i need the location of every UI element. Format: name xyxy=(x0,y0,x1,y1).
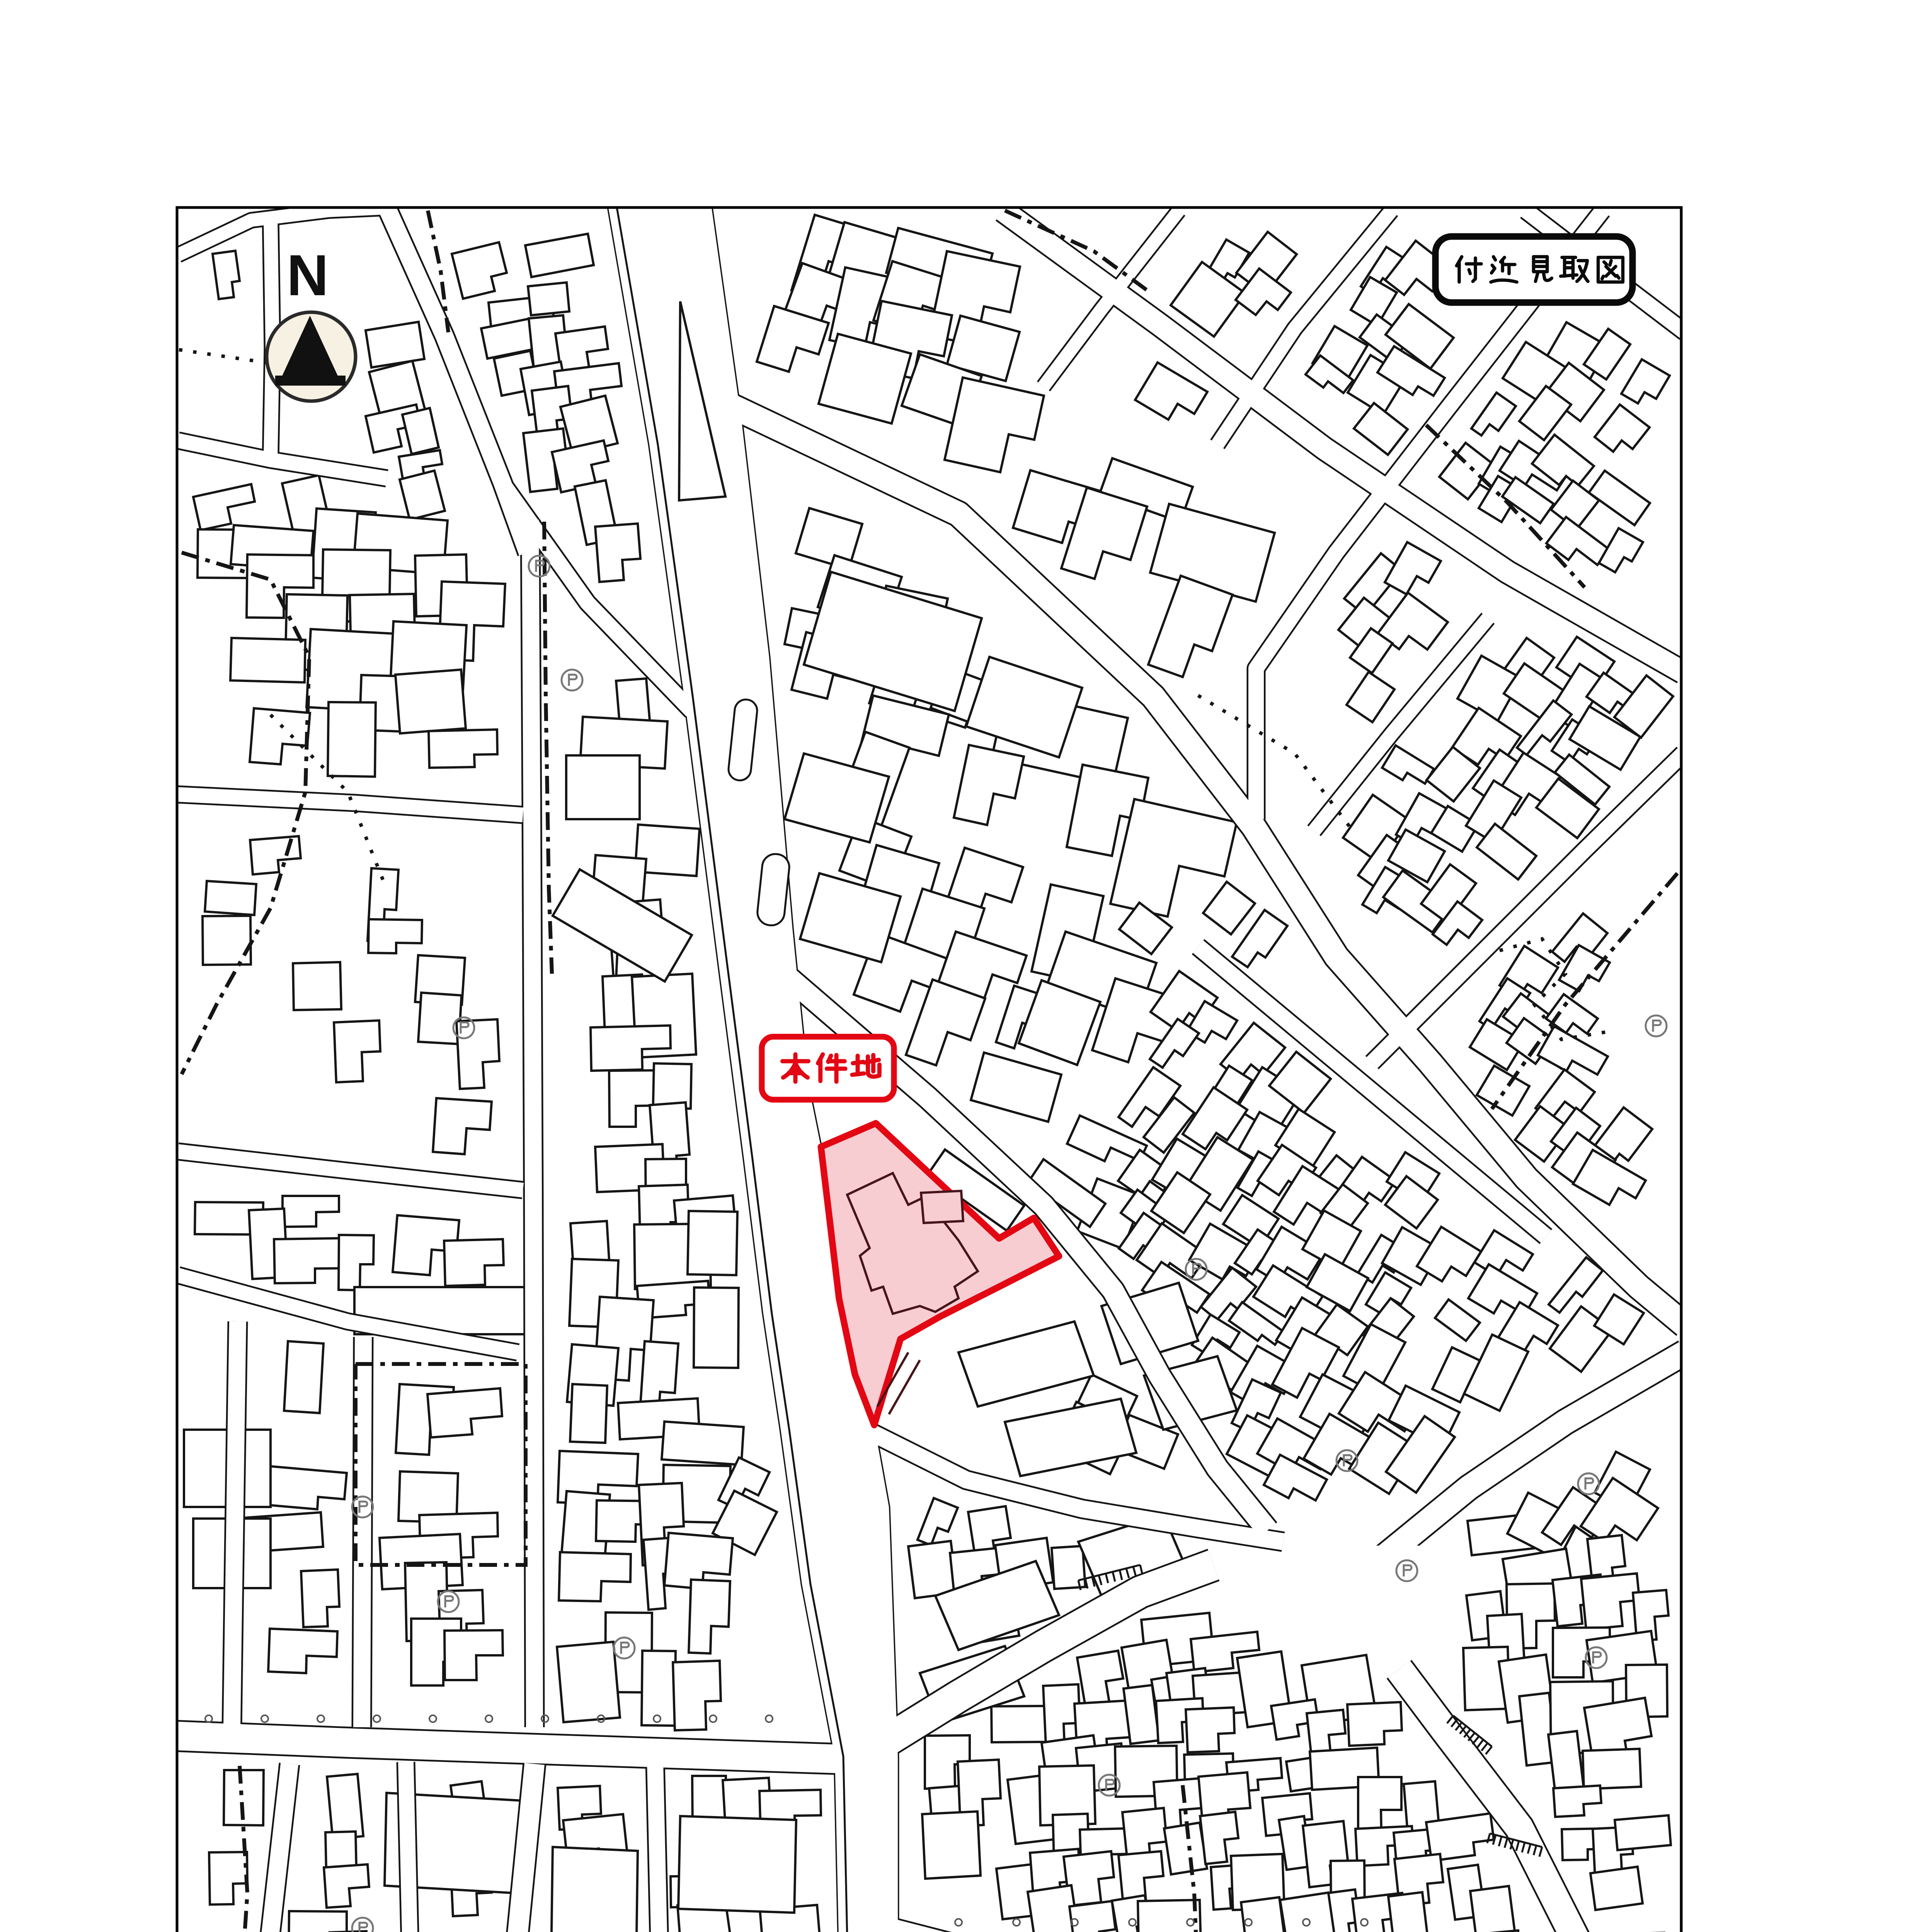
svg-text:N: N xyxy=(287,243,329,308)
